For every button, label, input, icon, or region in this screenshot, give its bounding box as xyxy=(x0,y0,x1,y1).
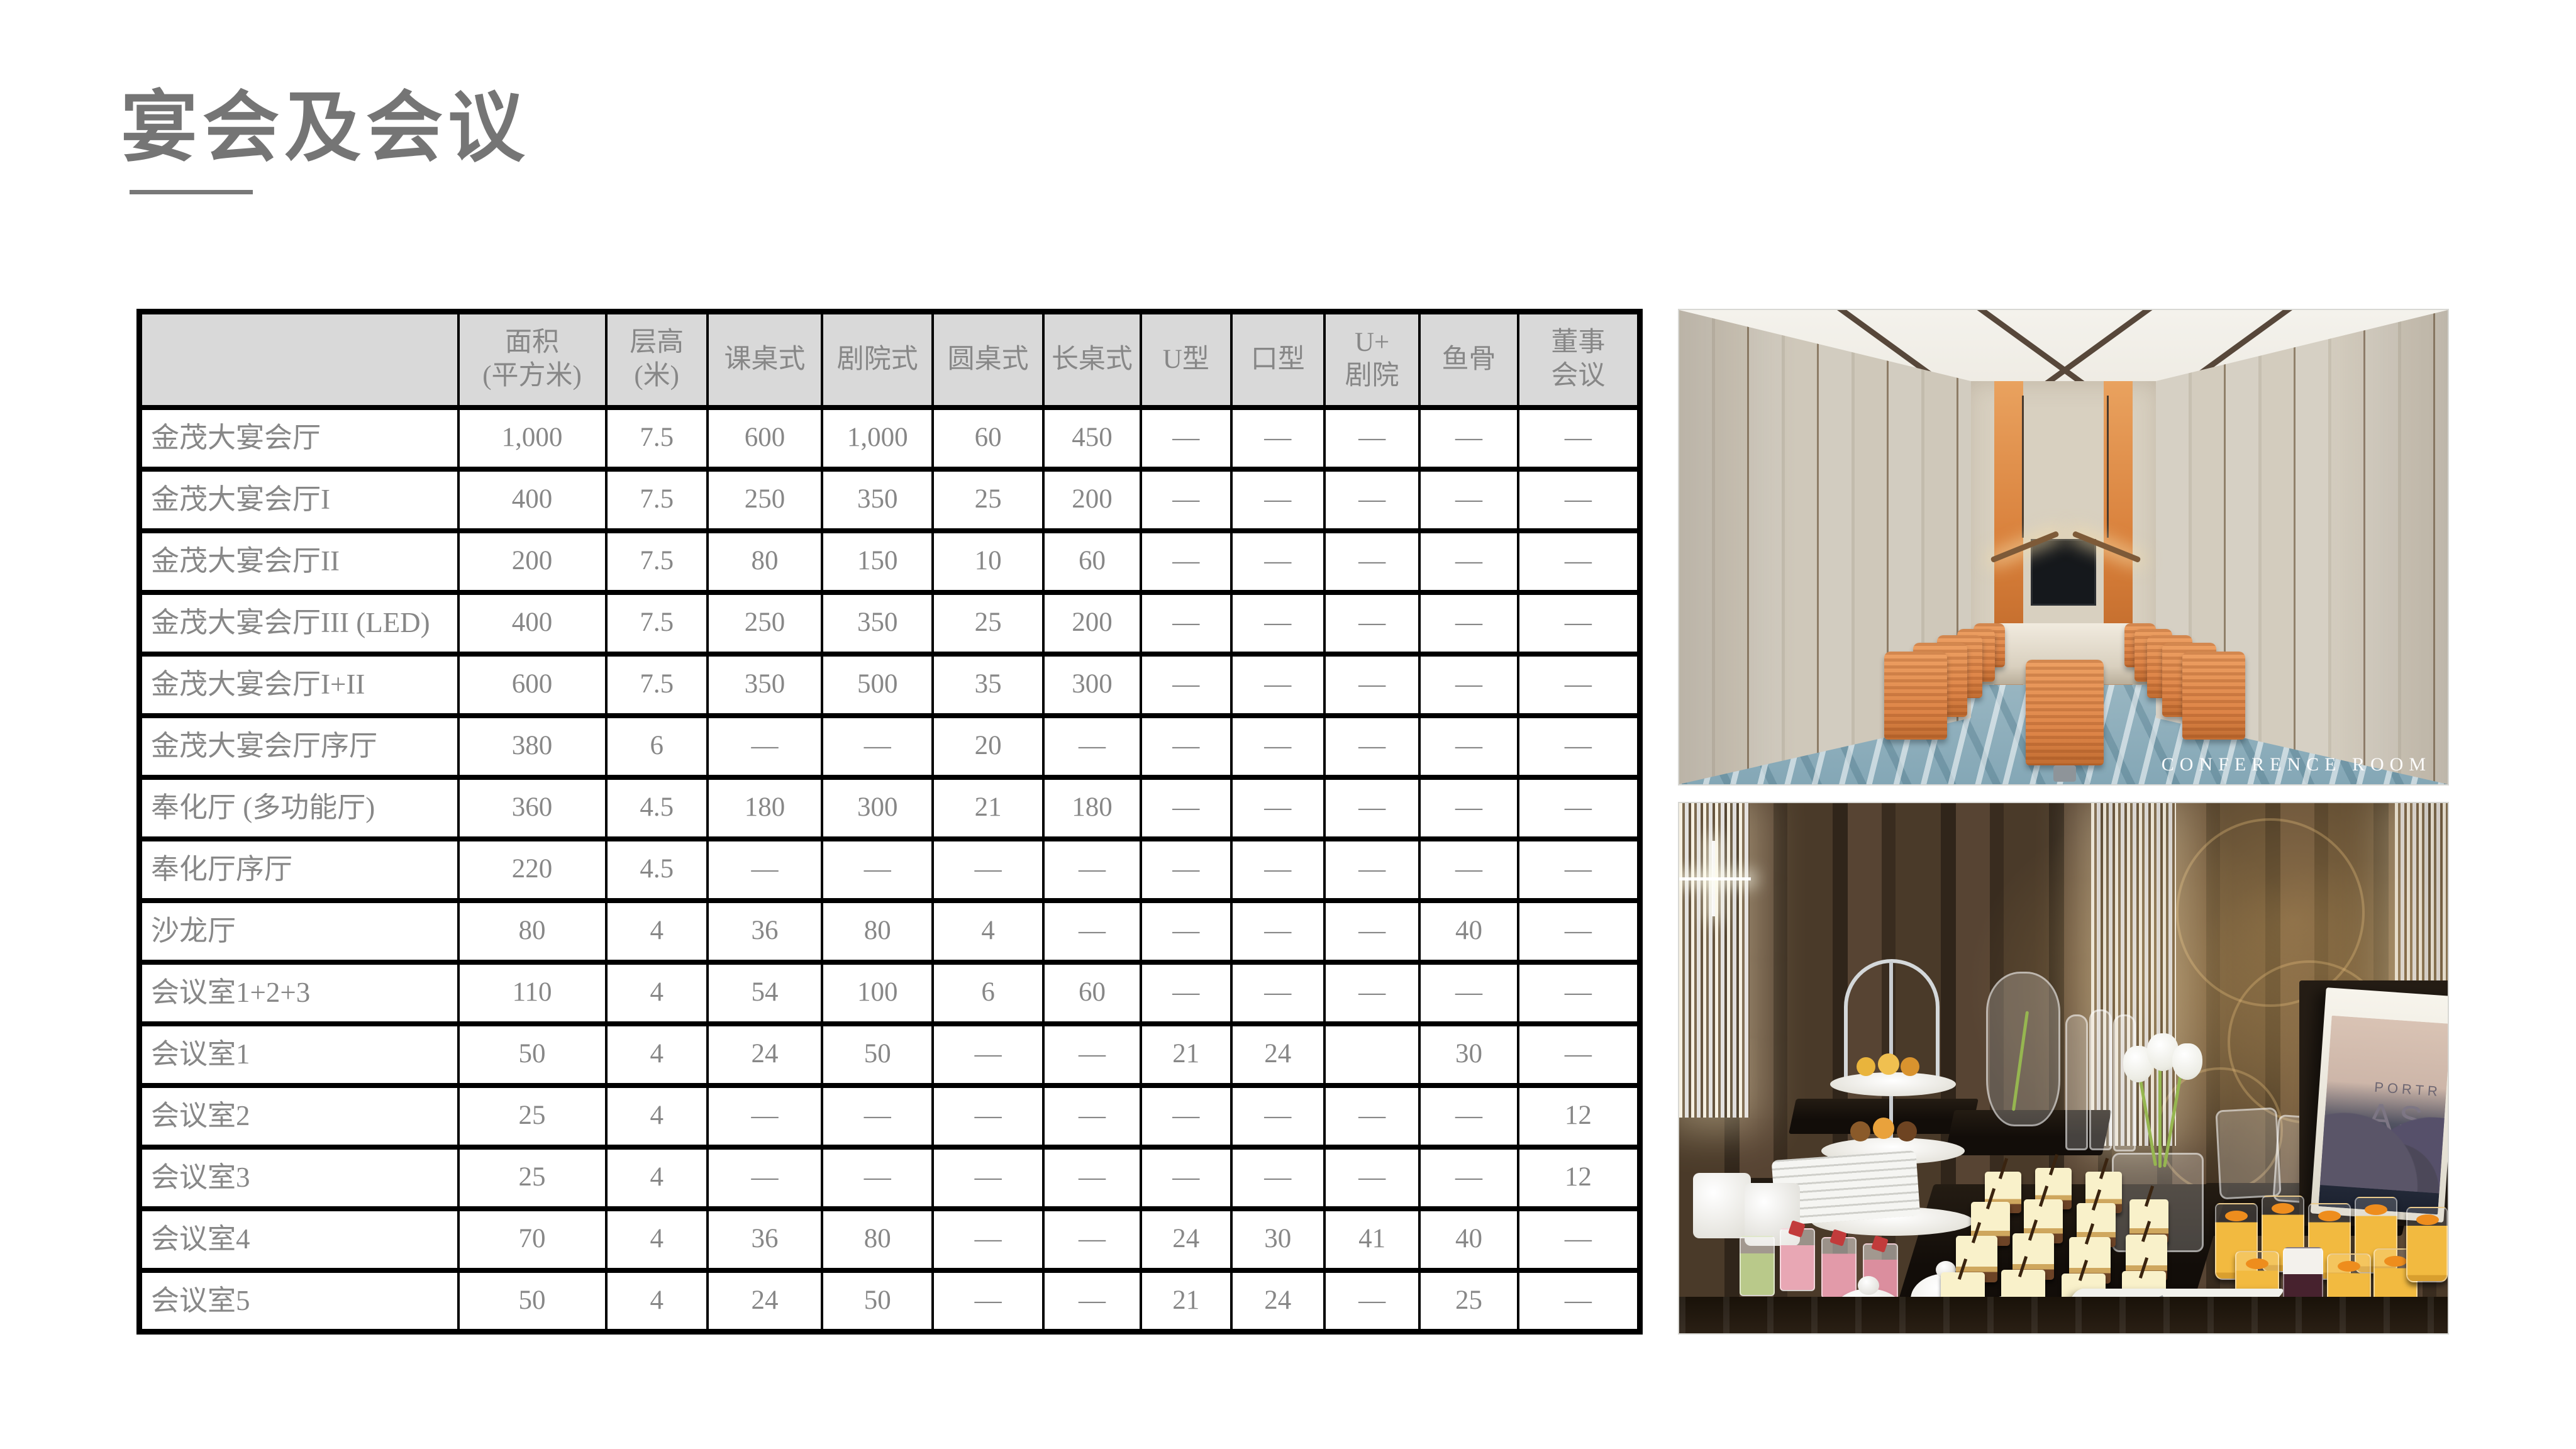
pastry xyxy=(1878,1053,1899,1075)
room-name-cell: 会议室3 xyxy=(140,1147,458,1209)
room-name-cell: 奉化厅序厅 xyxy=(140,839,458,901)
header-u-plus-theatre: U+ 剧院 xyxy=(1324,312,1420,408)
white-tulip xyxy=(2172,1043,2202,1080)
capacity-cell: 250 xyxy=(708,469,822,531)
page-title: 宴会及会议 xyxy=(121,65,530,177)
header-boardroom: 董事 会议 xyxy=(1518,312,1640,408)
room-name-cell: 会议室5 xyxy=(140,1270,458,1332)
header-fishbone: 鱼骨 xyxy=(1419,312,1518,408)
capacity-cell: — xyxy=(1324,654,1420,716)
table-row: 会议室3254————————12 xyxy=(140,1147,1640,1209)
capacity-cell: 300 xyxy=(1043,654,1141,716)
header-ceiling-height: 层高 (米) xyxy=(606,312,708,408)
capacity-cell: — xyxy=(708,1147,822,1209)
title-underline xyxy=(130,190,253,194)
capacity-cell: 4 xyxy=(606,1209,708,1270)
capacity-cell: — xyxy=(708,839,822,901)
capacity-cell: — xyxy=(1141,654,1231,716)
capacity-cell: 80 xyxy=(822,901,933,962)
banquet-capacity-table: 面积 (平方米) 层高 (米) 课桌式 剧院式 圆桌式 长桌式 U型 口型 U+… xyxy=(136,309,1643,1335)
capacity-cell: — xyxy=(1518,469,1640,531)
capacity-cell: 1,000 xyxy=(458,408,606,469)
capacity-cell: — xyxy=(1518,654,1640,716)
mango-pudding-cup xyxy=(2406,1207,2448,1282)
capacity-cell: 36 xyxy=(708,901,822,962)
capacity-cell: 4 xyxy=(606,1024,708,1085)
capacity-cell: — xyxy=(822,839,933,901)
capacity-cell: — xyxy=(1324,716,1420,777)
capacity-cell: — xyxy=(1043,839,1141,901)
capacity-cell: 40 xyxy=(1419,901,1518,962)
dessert-buffet-photo: PORTR AS xyxy=(1678,802,2449,1335)
capacity-cell: 4 xyxy=(606,1085,708,1147)
capacity-cell: — xyxy=(822,716,933,777)
table-row: 金茂大宴会厅II2007.5801501060————— xyxy=(140,531,1640,592)
conference-room-photo: CONFERENCE ROOM xyxy=(1678,309,2449,786)
capacity-cell: 25 xyxy=(933,469,1043,531)
capacity-cell: — xyxy=(1324,1085,1420,1147)
capacity-cell: 7.5 xyxy=(606,654,708,716)
room-name-cell: 金茂大宴会厅II xyxy=(140,531,458,592)
capacity-cell: — xyxy=(1324,777,1420,839)
dessert-verrine xyxy=(1740,1236,1775,1296)
capacity-cell: — xyxy=(1141,777,1231,839)
office-chair xyxy=(2182,652,2245,740)
table-row: 金茂大宴会厅1,0007.56001,00060450————— xyxy=(140,408,1640,469)
capacity-cell: 600 xyxy=(708,408,822,469)
capacity-cell: — xyxy=(1043,1209,1141,1270)
capacity-cell: — xyxy=(1231,469,1324,531)
room-name-cell: 沙龙厅 xyxy=(140,901,458,962)
pastry xyxy=(1901,1057,1919,1076)
capacity-cell: 6 xyxy=(933,962,1043,1024)
capacity-cell: — xyxy=(1518,531,1640,592)
room-name-cell: 金茂大宴会厅I xyxy=(140,469,458,531)
gaiwan-lid-knob xyxy=(1858,1276,1879,1295)
capacity-cell: 4 xyxy=(606,1147,708,1209)
capacity-cell: — xyxy=(1324,839,1420,901)
capacity-cell: 25 xyxy=(458,1147,606,1209)
capacity-cell: — xyxy=(1043,901,1141,962)
header-area: 面积 (平方米) xyxy=(458,312,606,408)
capacity-cell: — xyxy=(933,1024,1043,1085)
capacity-cell: 41 xyxy=(1324,1209,1420,1270)
capacity-cell: 7.5 xyxy=(606,469,708,531)
capacity-cell: 350 xyxy=(822,592,933,654)
capacity-cell: — xyxy=(1518,592,1640,654)
capacity-cell: — xyxy=(1419,1147,1518,1209)
coffee-mug xyxy=(1693,1173,1751,1238)
capacity-cell: 4 xyxy=(606,901,708,962)
capacity-cell: — xyxy=(1324,1147,1420,1209)
table-row: 金茂大宴会厅序厅3806——20—————— xyxy=(140,716,1640,777)
capacity-cell: 35 xyxy=(933,654,1043,716)
photo-caption-text: CONFERENCE ROOM xyxy=(2162,754,2431,775)
tulip-stem xyxy=(2158,1067,2162,1168)
capacity-cell: — xyxy=(822,1147,933,1209)
table-front-edge xyxy=(1679,1297,2448,1333)
capacity-cell: 6 xyxy=(606,716,708,777)
room-name-cell: 会议室1+2+3 xyxy=(140,962,458,1024)
capacity-cell: 180 xyxy=(1043,777,1141,839)
capacity-cell: 400 xyxy=(458,592,606,654)
room-name-cell: 会议室1 xyxy=(140,1024,458,1085)
capacity-cell: 7.5 xyxy=(606,531,708,592)
capacity-cell: 25 xyxy=(458,1085,606,1147)
capacity-cell: — xyxy=(1419,716,1518,777)
capacity-cell: — xyxy=(1043,1024,1141,1085)
capacity-cell: 80 xyxy=(822,1209,933,1270)
capacity-cell: — xyxy=(1141,469,1231,531)
capacity-cell: 4.5 xyxy=(606,777,708,839)
capacity-cell: 360 xyxy=(458,777,606,839)
capacity-cell: 50 xyxy=(822,1270,933,1332)
dessert-verrine xyxy=(1780,1228,1815,1291)
capacity-cell: — xyxy=(1231,654,1324,716)
chair-base xyxy=(2053,765,2076,782)
capacity-cell: — xyxy=(1518,1209,1640,1270)
capacity-cell: 60 xyxy=(1043,531,1141,592)
capacity-cell: — xyxy=(1141,592,1231,654)
pendant-cable xyxy=(2107,396,2109,538)
capacity-cell: 1,000 xyxy=(822,408,933,469)
capacity-cell: — xyxy=(1231,839,1324,901)
pastry xyxy=(1897,1121,1917,1141)
glass-bottle xyxy=(2089,1009,2112,1150)
room-name-cell: 金茂大宴会厅 xyxy=(140,408,458,469)
capacity-cell: — xyxy=(1141,1147,1231,1209)
capacity-cell: 50 xyxy=(458,1024,606,1085)
capacity-cell: 25 xyxy=(1419,1270,1518,1332)
capacity-cell: — xyxy=(1043,1270,1141,1332)
capacity-cell: 70 xyxy=(458,1209,606,1270)
capacity-cell: 40 xyxy=(1419,1209,1518,1270)
capacity-cell: — xyxy=(1324,962,1420,1024)
capacity-cell: — xyxy=(1419,408,1518,469)
capacity-cell: — xyxy=(933,839,1043,901)
capacity-cell: — xyxy=(933,1085,1043,1147)
capacity-cell: — xyxy=(1324,469,1420,531)
capacity-cell xyxy=(1324,1024,1420,1085)
sparkle xyxy=(1678,877,1751,880)
office-chair xyxy=(1884,652,1947,740)
photo-caption: CONFERENCE ROOM xyxy=(2162,754,2431,775)
capacity-cell: — xyxy=(1324,408,1420,469)
capacity-cell: 7.5 xyxy=(606,408,708,469)
room-name-cell: 金茂大宴会厅I+II xyxy=(140,654,458,716)
header-classroom: 课桌式 xyxy=(708,312,822,408)
capacity-cell: — xyxy=(1231,901,1324,962)
capacity-cell: — xyxy=(1231,1147,1324,1209)
capacity-cell: — xyxy=(1141,1085,1231,1147)
capacity-cell: — xyxy=(708,716,822,777)
capacity-cell: 36 xyxy=(708,1209,822,1270)
capacity-cell: — xyxy=(1231,592,1324,654)
capacity-cell: — xyxy=(1043,1085,1141,1147)
capacity-cell: 400 xyxy=(458,469,606,531)
capacity-cell: — xyxy=(822,1085,933,1147)
capacity-cell: — xyxy=(1324,1270,1420,1332)
capacity-cell: 80 xyxy=(458,901,606,962)
capacity-cell: — xyxy=(1419,839,1518,901)
capacity-cell: 350 xyxy=(708,654,822,716)
capacity-cell: 20 xyxy=(933,716,1043,777)
capacity-cell: 50 xyxy=(822,1024,933,1085)
capacity-cell: — xyxy=(1231,962,1324,1024)
header-long-table: 长桌式 xyxy=(1043,312,1141,408)
capacity-cell: 30 xyxy=(1419,1024,1518,1085)
capacity-cell: 50 xyxy=(458,1270,606,1332)
capacity-cell: 12 xyxy=(1518,1147,1640,1209)
book-cover: PORTR AS xyxy=(2319,1016,2449,1215)
capacity-cell: — xyxy=(933,1209,1043,1270)
capacity-cell: 21 xyxy=(1141,1024,1231,1085)
capacity-cell: — xyxy=(1141,962,1231,1024)
glass-bottle xyxy=(2113,1014,2136,1152)
table-row: 会议室1+2+3110454100660————— xyxy=(140,962,1640,1024)
pendant-cable xyxy=(2022,396,2024,538)
capacity-cell: 25 xyxy=(933,592,1043,654)
capacity-cell: — xyxy=(1231,716,1324,777)
cake-stand-plate xyxy=(1830,1072,1956,1096)
capacity-cell: 60 xyxy=(933,408,1043,469)
capacity-cell: 110 xyxy=(458,962,606,1024)
capacity-cell: 350 xyxy=(822,469,933,531)
capacity-cell: 24 xyxy=(1231,1270,1324,1332)
capacity-cell: 10 xyxy=(933,531,1043,592)
capacity-cell: — xyxy=(1324,901,1420,962)
capacity-cell: — xyxy=(1231,531,1324,592)
table-row: 会议室2254————————12 xyxy=(140,1085,1640,1147)
capacity-cell: — xyxy=(1419,1085,1518,1147)
capacity-cell: — xyxy=(1141,531,1231,592)
capacity-cell: — xyxy=(708,1085,822,1147)
capacity-cell: — xyxy=(1518,408,1640,469)
table-row: 奉化厅序厅2204.5————————— xyxy=(140,839,1640,901)
pastry xyxy=(1873,1118,1894,1139)
table-row: 沙龙厅80436804————40— xyxy=(140,901,1640,962)
book-mountains xyxy=(2320,1109,2445,1193)
capacity-cell: 80 xyxy=(708,531,822,592)
capacity-cell: — xyxy=(1518,1024,1640,1085)
room-name-cell: 会议室4 xyxy=(140,1209,458,1270)
dessert-verrine xyxy=(1821,1237,1857,1299)
capacity-cell: — xyxy=(933,1147,1043,1209)
header-hollow-square: 口型 xyxy=(1231,312,1324,408)
water-glass xyxy=(2215,1108,2281,1200)
office-chair-center xyxy=(2026,660,2104,765)
room-name-cell: 金茂大宴会厅序厅 xyxy=(140,716,458,777)
capacity-cell: — xyxy=(1419,654,1518,716)
capacity-cell: — xyxy=(1231,408,1324,469)
capacity-cell: 24 xyxy=(1231,1024,1324,1085)
capacity-cell: — xyxy=(1419,531,1518,592)
header-room-name xyxy=(140,312,458,408)
capacity-cell: 600 xyxy=(458,654,606,716)
capacity-cell: — xyxy=(1518,839,1640,901)
capacity-cell: — xyxy=(1518,716,1640,777)
room-name-cell: 奉化厅 (多功能厅) xyxy=(140,777,458,839)
capacity-cell: — xyxy=(1518,1270,1640,1332)
capacity-cell: — xyxy=(1043,716,1141,777)
table-header-row: 面积 (平方米) 层高 (米) 课桌式 剧院式 圆桌式 长桌式 U型 口型 U+… xyxy=(140,312,1640,408)
table-row: 会议室47043680——24304140— xyxy=(140,1209,1640,1270)
capacity-cell: 24 xyxy=(708,1024,822,1085)
capacity-cell: 180 xyxy=(708,777,822,839)
capacity-cell: 500 xyxy=(822,654,933,716)
capacity-cell: 7.5 xyxy=(606,592,708,654)
capacity-cell: 4 xyxy=(606,962,708,1024)
glass-bottle xyxy=(2065,1014,2088,1150)
capacity-cell: — xyxy=(1231,777,1324,839)
capacity-cell: — xyxy=(1141,408,1231,469)
capacity-cell: — xyxy=(1419,469,1518,531)
capacity-cell: 450 xyxy=(1043,408,1141,469)
table-row: 奉化厅 (多功能厅)3604.518030021180————— xyxy=(140,777,1640,839)
capacity-cell: 21 xyxy=(1141,1270,1231,1332)
capacity-cell: — xyxy=(1518,777,1640,839)
capacity-cell: 12 xyxy=(1518,1085,1640,1147)
capacity-cell: 4.5 xyxy=(606,839,708,901)
table-row: 金茂大宴会厅I+II6007.535050035300————— xyxy=(140,654,1640,716)
capacity-cell: — xyxy=(1141,839,1231,901)
capacity-cell: — xyxy=(1419,777,1518,839)
capacity-cell: 200 xyxy=(458,531,606,592)
header-u-shape: U型 xyxy=(1141,312,1231,408)
coffee-table-book: PORTR AS xyxy=(2311,987,2449,1223)
capacity-cell: 380 xyxy=(458,716,606,777)
capacity-cell: 300 xyxy=(822,777,933,839)
capacity-cell: — xyxy=(1141,716,1231,777)
capacity-cell: 21 xyxy=(933,777,1043,839)
table-row: 会议室15042450——212430— xyxy=(140,1024,1640,1085)
capacity-cell: — xyxy=(1141,901,1231,962)
capacity-cell: 220 xyxy=(458,839,606,901)
tv-screen xyxy=(2031,539,2096,606)
capacity-cell: 24 xyxy=(708,1270,822,1332)
capacity-cell: — xyxy=(1324,531,1420,592)
capacity-cell: 30 xyxy=(1231,1209,1324,1270)
table-body: 金茂大宴会厅1,0007.56001,00060450—————金茂大宴会厅I4… xyxy=(140,408,1640,1332)
capacity-cell: — xyxy=(1043,1147,1141,1209)
capacity-cell: 24 xyxy=(1141,1209,1231,1270)
header-theatre: 剧院式 xyxy=(822,312,933,408)
capacity-cell: — xyxy=(1518,901,1640,962)
table-row: 金茂大宴会厅I4007.525035025200————— xyxy=(140,469,1640,531)
capacity-cell: 200 xyxy=(1043,592,1141,654)
capacity-cell: 150 xyxy=(822,531,933,592)
table-row: 金茂大宴会厅III (LED)4007.525035025200————— xyxy=(140,592,1640,654)
capacity-cell: 100 xyxy=(822,962,933,1024)
room-name-cell: 会议室2 xyxy=(140,1085,458,1147)
pastry xyxy=(1850,1121,1870,1141)
room-name-cell: 金茂大宴会厅III (LED) xyxy=(140,592,458,654)
capacity-cell: — xyxy=(1419,962,1518,1024)
capacity-cell: — xyxy=(1419,592,1518,654)
capacity-cell: — xyxy=(1324,592,1420,654)
capacity-cell: 60 xyxy=(1043,962,1141,1024)
capacity-cell: 200 xyxy=(1043,469,1141,531)
capacity-cell: — xyxy=(1518,962,1640,1024)
header-round-table: 圆桌式 xyxy=(933,312,1043,408)
capacity-cell: — xyxy=(1231,1085,1324,1147)
capacity-cell: 4 xyxy=(606,1270,708,1332)
capacity-cell: — xyxy=(933,1270,1043,1332)
table-row: 会议室55042450——2124—25— xyxy=(140,1270,1640,1332)
pastry xyxy=(1857,1057,1875,1076)
capacity-cell: 4 xyxy=(933,901,1043,962)
capacity-cell: 54 xyxy=(708,962,822,1024)
capacity-cell: 250 xyxy=(708,592,822,654)
